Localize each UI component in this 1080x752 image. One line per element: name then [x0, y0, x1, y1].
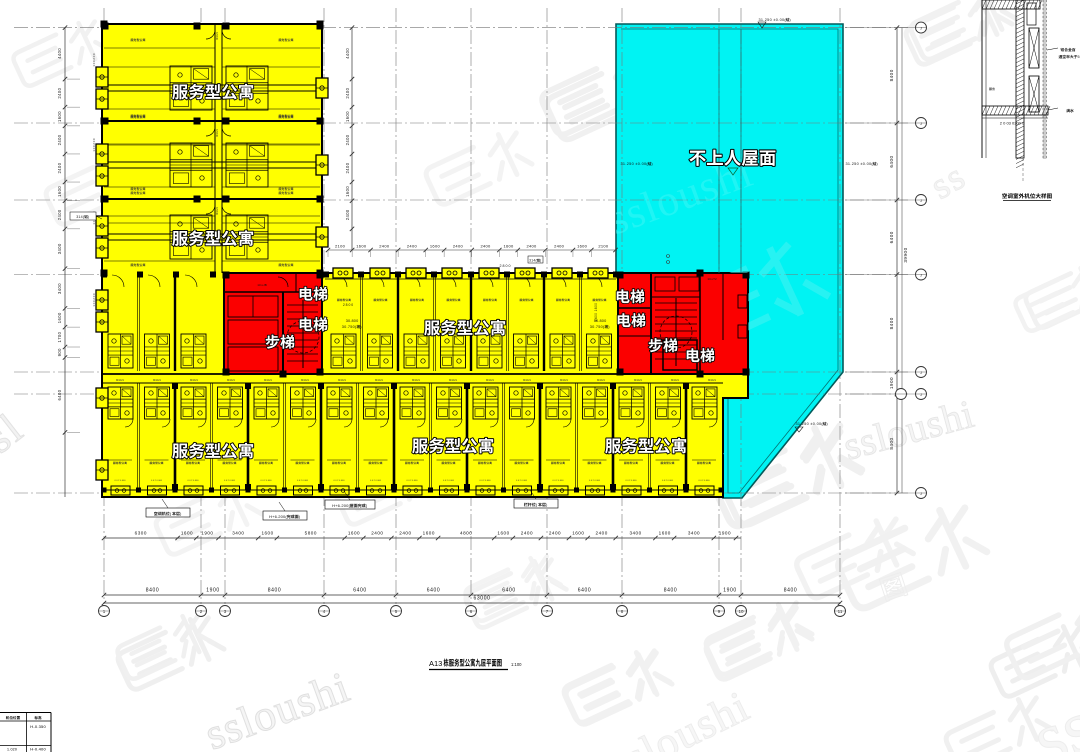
svg-text:1600: 1600 [423, 531, 435, 536]
svg-text:10: 10 [738, 609, 744, 614]
svg-text:63000: 63000 [474, 596, 491, 602]
svg-text:M1021: M1021 [264, 378, 272, 382]
svg-text:M1021: M1021 [116, 378, 124, 382]
svg-text:M1021: M1021 [227, 378, 235, 382]
svg-text:1.020: 1.020 [7, 748, 17, 752]
svg-text:1600: 1600 [261, 531, 273, 536]
svg-text:2100: 2100 [335, 244, 346, 249]
svg-text:M1021: M1021 [523, 378, 531, 382]
svg-text:1600: 1600 [345, 186, 350, 197]
svg-text:1600: 1600 [503, 244, 514, 249]
svg-text:J: J [920, 121, 922, 126]
svg-text:H-0.400: H-0.400 [30, 747, 46, 752]
svg-text:6400: 6400 [57, 389, 62, 400]
svg-text:6400: 6400 [427, 588, 441, 594]
svg-text:1600: 1600 [345, 111, 350, 122]
svg-text:0 0 2 0 000: 0 0 2 0 000 [443, 480, 455, 482]
svg-text:0 0 2 0 000: 0 0 2 0 000 [151, 480, 163, 482]
svg-text:2400: 2400 [379, 244, 390, 249]
svg-text:2400: 2400 [57, 87, 62, 98]
svg-text:6400: 6400 [889, 155, 894, 167]
svg-text:1900: 1900 [719, 531, 731, 536]
svg-text:8400: 8400 [664, 588, 678, 594]
svg-text:M1021: M1021 [560, 378, 568, 382]
svg-text:H+6.200[: H+6.200[ [332, 503, 350, 508]
svg-text:5: 5 [1078, 55, 1080, 59]
svg-text:30.800: 30.800 [346, 319, 359, 323]
svg-text:5800: 5800 [305, 531, 317, 536]
svg-text:0 0 2 0 000: 0 0 2 0 000 [407, 480, 419, 482]
svg-text:2400: 2400 [453, 244, 464, 249]
svg-text:M1021: M1021 [412, 378, 420, 382]
svg-text:6300: 6300 [135, 531, 147, 536]
svg-text:39900: 39900 [903, 247, 908, 262]
svg-text:1900: 1900 [889, 377, 894, 389]
svg-text:4400: 4400 [57, 48, 62, 59]
svg-text:J: J [920, 198, 922, 203]
svg-text:900: 900 [57, 348, 62, 356]
svg-text:31.250 ±0.00(: 31.250 ±0.00( [846, 162, 874, 166]
svg-text:2400: 2400 [57, 162, 62, 173]
svg-text:1600: 1600 [659, 531, 671, 536]
svg-text:1900: 1900 [206, 588, 220, 594]
svg-text:2 0 03 0300 0: 2 0 03 0300 0 [1000, 121, 1025, 126]
svg-text:M1021: M1021 [671, 378, 679, 382]
svg-text:8400: 8400 [889, 437, 894, 449]
svg-text:): ) [88, 215, 89, 219]
svg-text:2400: 2400 [521, 531, 533, 536]
svg-text:A13: A13 [429, 659, 442, 668]
svg-text:2400: 2400 [57, 134, 62, 145]
svg-text:3400: 3400 [629, 531, 641, 536]
svg-text:1900: 1900 [723, 588, 737, 594]
svg-text:1600: 1600 [572, 531, 584, 536]
svg-text:2400: 2400 [399, 531, 411, 536]
svg-text:2400: 2400 [596, 531, 608, 536]
svg-text:2400: 2400 [526, 244, 537, 249]
svg-text:M1021: M1021 [338, 378, 346, 382]
svg-text:8400: 8400 [268, 588, 282, 594]
svg-text:M1021: M1021 [375, 378, 383, 382]
svg-text:1900: 1900 [201, 531, 213, 536]
svg-text:J: J [920, 272, 922, 277]
svg-text:1600: 1600 [348, 531, 360, 536]
svg-text:M1021: M1021 [486, 378, 494, 382]
svg-text:30.800: 30.800 [594, 319, 607, 323]
svg-text:M1021: M1021 [449, 378, 457, 382]
svg-text:M1021: M1021 [215, 31, 219, 39]
svg-text:M1021: M1021 [597, 378, 605, 382]
svg-text:13-LT2: 13-LT2 [707, 277, 717, 281]
svg-text:M1021: M1021 [215, 206, 219, 214]
svg-text:314(: 314( [529, 259, 537, 263]
svg-text:0 0 2 0 000: 0 0 2 0 000 [334, 480, 346, 482]
svg-text:30.750(: 30.750( [590, 325, 605, 329]
svg-text:3400: 3400 [688, 531, 700, 536]
svg-text:0 0 2 0 000: 0 0 2 0 000 [115, 480, 127, 482]
svg-text:31.250 ±0.00(: 31.250 ±0.00( [759, 18, 787, 22]
svg-text:1:100: 1:100 [511, 662, 522, 667]
svg-text:1600: 1600 [57, 312, 62, 323]
svg-text:6400: 6400 [889, 231, 894, 243]
svg-text:M1021: M1021 [301, 378, 309, 382]
svg-text:6400: 6400 [502, 588, 516, 594]
svg-text:2400: 2400 [345, 134, 350, 145]
svg-text:1600: 1600 [497, 531, 509, 536]
svg-text:H+6.200(: H+6.200( [269, 514, 287, 519]
svg-text:J: J [920, 370, 922, 375]
svg-text:M1021: M1021 [708, 378, 716, 382]
svg-text:2400: 2400 [57, 209, 62, 220]
svg-text:J: J [920, 25, 922, 30]
svg-text:8400: 8400 [889, 317, 894, 329]
svg-text:M1021: M1021 [215, 128, 219, 136]
svg-text:4800: 4800 [460, 531, 472, 536]
svg-text:M1021: M1021 [634, 378, 642, 382]
svg-text:M1021: M1021 [190, 378, 198, 382]
svg-text:2400: 2400 [407, 244, 418, 249]
svg-text:0 0 2 0 000: 0 0 2 0 000 [370, 480, 382, 482]
svg-text:0 0 2 0 000: 0 0 2 0 000 [480, 480, 492, 482]
svg-text:): ) [540, 259, 541, 263]
svg-text:2400: 2400 [549, 531, 561, 536]
svg-text:2400: 2400 [371, 531, 383, 536]
svg-text:31.250 ±0.00(: 31.250 ±0.00( [796, 422, 824, 426]
svg-text:0 0 2 0 000: 0 0 2 0 000 [224, 480, 236, 482]
svg-text:0 0 2 0 000: 0 0 2 0 000 [261, 480, 273, 482]
svg-text:2 8 0 0: 2 8 0 0 [343, 303, 353, 307]
svg-text:1600: 1600 [57, 111, 62, 122]
svg-text:2 8 0 0: 2 8 0 0 [500, 264, 511, 268]
svg-text:2400: 2400 [345, 162, 350, 173]
svg-text:1600: 1600 [181, 531, 193, 536]
svg-text:8400: 8400 [146, 588, 160, 594]
svg-text:6400: 6400 [353, 588, 367, 594]
svg-text:1600: 1600 [57, 186, 62, 197]
svg-text:H-0.350: H-0.350 [30, 724, 46, 729]
svg-text:J: J [920, 392, 922, 397]
svg-text:0 0 2 0 000: 0 0 2 0 000 [297, 480, 309, 482]
svg-text:1 0 0 2 0 0: 1 0 0 2 0 0 [92, 53, 96, 67]
svg-text:1600: 1600 [430, 244, 441, 249]
svg-text:2100: 2100 [598, 244, 609, 249]
svg-text:0 0 2 0 000: 0 0 2 0 000 [662, 480, 674, 482]
svg-text:0 0 2 0 000: 0 0 2 0 000 [188, 480, 200, 482]
svg-text:3400: 3400 [57, 243, 62, 254]
svg-text:0 0 2 0 000: 0 0 2 0 000 [626, 480, 638, 482]
svg-text:2400: 2400 [480, 244, 491, 249]
svg-text:1600: 1600 [356, 244, 367, 249]
svg-text:13-LJB: 13-LJB [257, 283, 267, 287]
svg-text:1600: 1600 [577, 244, 588, 249]
svg-text:8400: 8400 [889, 69, 894, 81]
svg-text:31.250 ±0.00(: 31.250 ±0.00( [621, 162, 649, 166]
svg-text:0 0 2 0 000: 0 0 2 0 000 [516, 480, 528, 482]
svg-text:30.750(: 30.750( [342, 325, 357, 329]
svg-text:0 0 2 0 000: 0 0 2 0 000 [553, 480, 565, 482]
svg-text:314(: 314( [76, 215, 85, 219]
svg-text:M1021: M1021 [153, 378, 161, 382]
svg-text:3400: 3400 [232, 531, 244, 536]
svg-text:6400: 6400 [578, 588, 592, 594]
svg-text:1700: 1700 [57, 331, 62, 342]
svg-text:]: ] [366, 503, 367, 508]
svg-text:2400: 2400 [345, 87, 350, 98]
svg-text:0 0 2 0 000: 0 0 2 0 000 [699, 480, 711, 482]
svg-text:2400: 2400 [345, 209, 350, 220]
svg-text:2400: 2400 [554, 244, 565, 249]
svg-text:4400: 4400 [345, 48, 350, 59]
svg-text:8400: 8400 [784, 588, 798, 594]
svg-text:11: 11 [838, 609, 843, 614]
svg-text:0 0 2 0 000: 0 0 2 0 000 [589, 480, 601, 482]
svg-text:3400: 3400 [57, 283, 62, 294]
svg-text:1 0 0 2 0 0: 1 0 0 2 0 0 [92, 138, 96, 152]
svg-text:J: J [920, 491, 922, 496]
